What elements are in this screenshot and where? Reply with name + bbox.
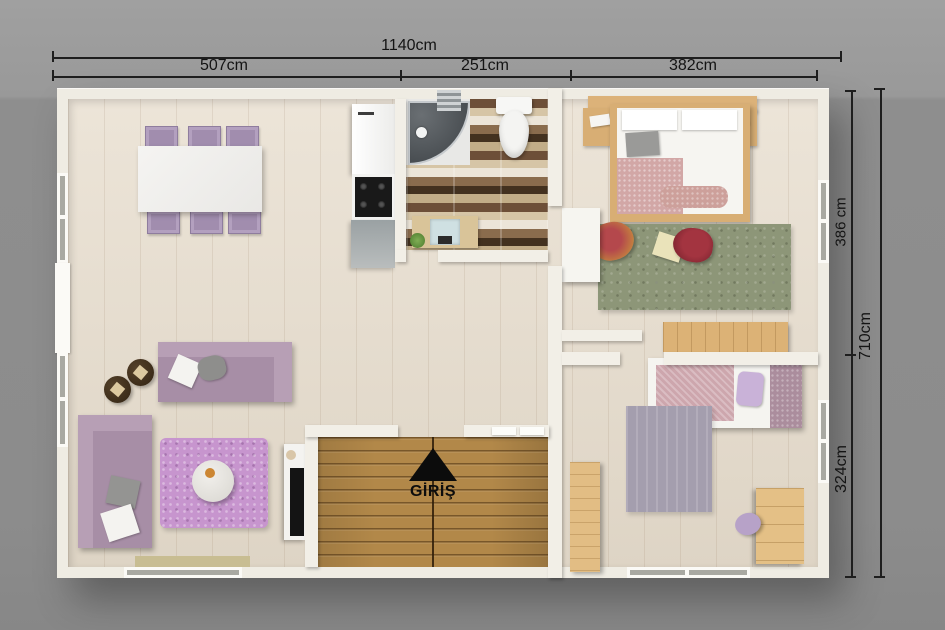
window-bottom-bedroom-mullion bbox=[685, 568, 689, 577]
dining-chair bbox=[147, 210, 180, 234]
dim-label-right-total: 710cm bbox=[857, 312, 875, 360]
burner-icon bbox=[360, 183, 367, 190]
wall-vertical-upper bbox=[548, 88, 562, 206]
tv-stand-decor bbox=[286, 450, 296, 460]
wood-wardrobe bbox=[570, 462, 600, 572]
wall-vertical-lower bbox=[548, 266, 562, 578]
shower-head-icon bbox=[416, 127, 427, 138]
sink-faucet bbox=[438, 236, 452, 244]
wall-bedroom-divider-a bbox=[562, 352, 620, 365]
dim-tick bbox=[845, 576, 856, 578]
gray-rug bbox=[626, 406, 712, 512]
white-wardrobe bbox=[562, 208, 600, 282]
stool-cushion bbox=[110, 382, 125, 397]
wall-column-left bbox=[55, 263, 70, 353]
window-right-lower-mullion bbox=[819, 439, 828, 443]
window-left-lower-mullion bbox=[58, 397, 67, 401]
coffee-table bbox=[192, 460, 234, 502]
wall-deck-top-a bbox=[305, 425, 398, 437]
bed-cushion-gray bbox=[625, 131, 660, 157]
refrigerator-handle bbox=[358, 112, 374, 115]
sofa-horizontal-arm bbox=[274, 342, 292, 402]
entrance-arrow-icon bbox=[409, 448, 457, 481]
sofa-pillow bbox=[105, 475, 140, 509]
window-left-upper-mullion bbox=[58, 215, 67, 219]
window-bottom-living-glass bbox=[127, 570, 239, 575]
dim-tick bbox=[52, 51, 54, 62]
window-right-upper-mullion bbox=[819, 219, 828, 223]
wall-hall-stub bbox=[562, 330, 642, 341]
dim-tick bbox=[874, 576, 885, 578]
burner-icon bbox=[360, 201, 367, 208]
floor-mat bbox=[135, 556, 250, 567]
sofa-vertical-back bbox=[78, 415, 93, 548]
dim-line-top-segments bbox=[52, 76, 817, 78]
dim-tick bbox=[52, 70, 54, 81]
shower-door bbox=[437, 90, 461, 111]
bed-pillow bbox=[622, 110, 677, 130]
wall-deck-left bbox=[305, 425, 318, 567]
dim-label-middle-segment: 251cm bbox=[461, 57, 509, 75]
door-threshold bbox=[492, 427, 516, 435]
hall-cabinet bbox=[663, 322, 788, 352]
dim-label-right-segment: 382cm bbox=[669, 57, 717, 75]
dim-tick bbox=[840, 51, 842, 62]
door-threshold bbox=[520, 427, 544, 435]
wall-bathroom-bottom-a bbox=[395, 250, 406, 262]
wall-bathroom-left bbox=[395, 99, 406, 250]
kitchen-cabinet bbox=[351, 220, 395, 268]
wall-bedroom-divider-b bbox=[664, 352, 818, 365]
dim-tick bbox=[874, 88, 885, 90]
floorplan-render: GİRİŞ 1140cm 507cm 251cm 382cm 386 cm 71… bbox=[0, 0, 945, 630]
side-stool bbox=[127, 359, 154, 386]
burner-icon bbox=[378, 201, 385, 208]
dining-chair bbox=[190, 210, 223, 234]
dim-tick bbox=[400, 70, 402, 81]
dim-tick bbox=[570, 70, 572, 81]
sofa-vertical-arm bbox=[78, 415, 152, 431]
dim-label-total-width: 1140cm bbox=[381, 37, 437, 55]
tv bbox=[290, 468, 304, 536]
dim-line-right-total bbox=[880, 88, 882, 577]
burner-icon bbox=[378, 183, 385, 190]
dim-tick bbox=[845, 90, 856, 92]
desk bbox=[756, 488, 804, 564]
dining-table bbox=[138, 146, 262, 212]
dim-line-top-total bbox=[52, 57, 841, 59]
bathroom-plant bbox=[410, 233, 425, 248]
single-bed-bolster bbox=[770, 358, 802, 428]
bed-pillow bbox=[682, 110, 737, 130]
entrance-label: GİRİŞ bbox=[410, 483, 456, 501]
dim-tick bbox=[816, 70, 818, 81]
single-bed-pillow bbox=[736, 371, 765, 407]
stool-cushion bbox=[133, 365, 148, 380]
bed-blanket-roll bbox=[660, 186, 728, 208]
dim-label-right-lower: 324cm bbox=[833, 445, 851, 493]
dim-tick bbox=[845, 354, 856, 356]
side-stool bbox=[104, 376, 131, 403]
dining-chair bbox=[228, 210, 261, 234]
wall-bathroom-bottom-b bbox=[438, 250, 548, 262]
coffee-table-decor bbox=[205, 468, 215, 478]
dim-label-right-upper: 386 cm bbox=[833, 197, 850, 246]
dim-label-left-segment: 507cm bbox=[200, 57, 248, 75]
dim-line-right-segments bbox=[851, 90, 853, 577]
